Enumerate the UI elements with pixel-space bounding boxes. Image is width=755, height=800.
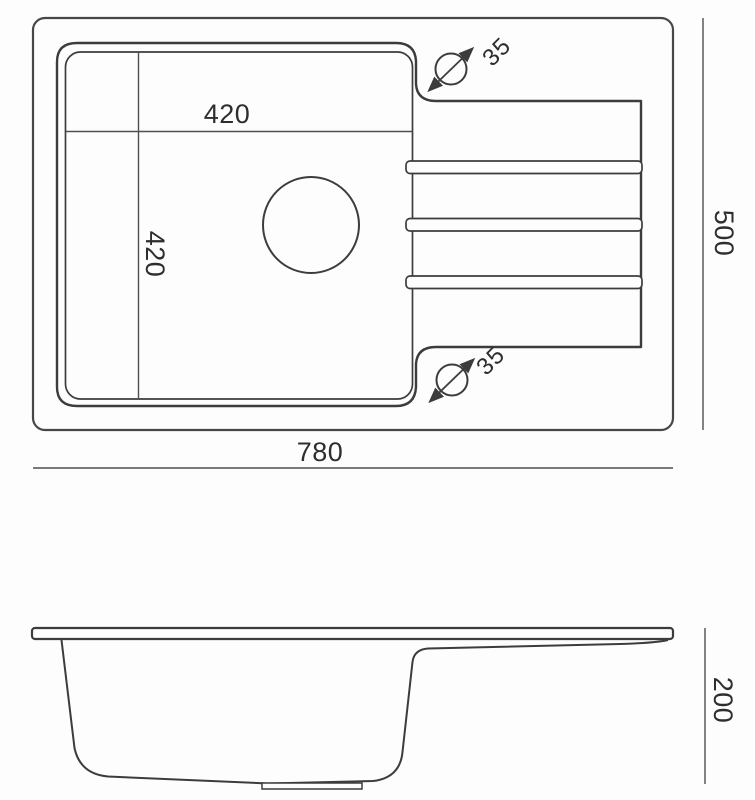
drainboard-ridge-2 bbox=[406, 219, 642, 232]
dim-label-bowl-width: 420 bbox=[204, 99, 251, 129]
dim-label-bowl-depth: 420 bbox=[140, 231, 170, 278]
side-rim bbox=[32, 628, 673, 639]
drawing-svg: 420 420 35 35 500 780 bbox=[0, 0, 755, 800]
dim-label-bowl-height: 200 bbox=[708, 677, 738, 724]
tap-hole-top-label: 35 bbox=[477, 32, 516, 71]
side-drain-fitting bbox=[262, 783, 362, 789]
tap-hole-top: 35 bbox=[429, 32, 517, 90]
side-view: 200 bbox=[32, 628, 738, 789]
drainboard-ridge-3 bbox=[406, 276, 642, 289]
dim-label-overall-depth: 500 bbox=[709, 210, 739, 257]
dim-label-overall-width: 780 bbox=[297, 437, 344, 467]
drainboard-ridges bbox=[406, 161, 642, 289]
tap-hole-bottom: 35 bbox=[430, 341, 511, 401]
top-view: 420 420 35 35 500 780 bbox=[33, 18, 739, 468]
drain-hole bbox=[263, 177, 359, 273]
drainboard-ridge-1 bbox=[406, 161, 642, 174]
sink-technical-drawing: 420 420 35 35 500 780 bbox=[0, 0, 755, 800]
side-bowl-profile bbox=[62, 640, 669, 784]
